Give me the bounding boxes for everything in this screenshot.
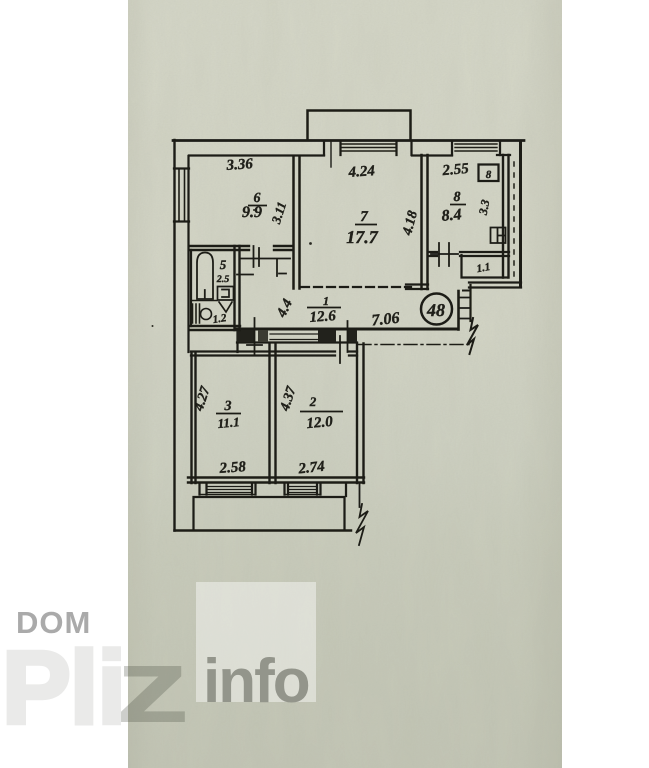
svg-text:2.74: 2.74 [297, 459, 326, 478]
svg-text:1.2: 1.2 [212, 312, 228, 326]
svg-text:9.9: 9.9 [242, 204, 262, 221]
svg-text:12.6: 12.6 [309, 308, 337, 326]
svg-text:3: 3 [224, 399, 232, 414]
svg-text:2.55: 2.55 [441, 161, 470, 179]
svg-text:8: 8 [486, 169, 492, 181]
svg-text:12.0: 12.0 [306, 414, 334, 432]
svg-text:8: 8 [454, 190, 461, 205]
svg-text:2: 2 [309, 394, 317, 409]
svg-text:5: 5 [220, 257, 227, 272]
svg-text:1: 1 [323, 294, 329, 308]
svg-text:4.24: 4.24 [347, 163, 376, 181]
svg-text:17.7: 17.7 [346, 227, 379, 247]
svg-text:48: 48 [426, 300, 445, 320]
svg-text:7.06: 7.06 [371, 310, 401, 330]
svg-text:8.4: 8.4 [441, 206, 462, 225]
svg-text:11.1: 11.1 [217, 414, 240, 431]
svg-text:2.58: 2.58 [218, 459, 247, 477]
svg-text:1.1: 1.1 [476, 261, 492, 275]
svg-text:2.5: 2.5 [216, 274, 230, 285]
svg-text:3.36: 3.36 [225, 156, 254, 174]
svg-text:7: 7 [360, 209, 368, 225]
